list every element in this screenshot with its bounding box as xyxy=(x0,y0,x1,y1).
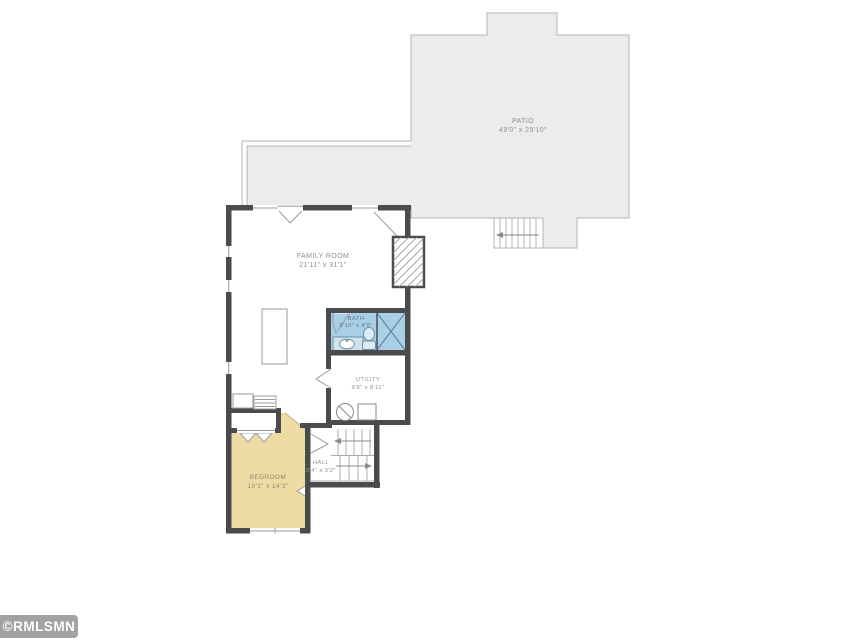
closet-box xyxy=(233,394,253,408)
fireplace xyxy=(393,237,424,287)
toilet xyxy=(363,328,376,350)
patio-steps xyxy=(494,218,543,248)
stairs xyxy=(310,429,374,481)
corner-diagonal xyxy=(374,212,398,237)
furnace xyxy=(358,404,376,420)
island xyxy=(262,309,287,364)
vanity-sink xyxy=(333,337,363,351)
floorplan-drawing xyxy=(0,0,853,640)
stairs-door-swing xyxy=(311,434,328,453)
bath-area xyxy=(331,308,405,351)
entry-door-swing xyxy=(279,211,302,223)
rmls-watermark: ©RMLSMN xyxy=(0,615,78,638)
utility-details xyxy=(316,369,376,421)
stairs-down-arrow-icon xyxy=(365,463,372,469)
floorplan-canvas: PATIO 49'0" x 29'10" FAMILY ROOM 21'11" … xyxy=(0,0,853,640)
